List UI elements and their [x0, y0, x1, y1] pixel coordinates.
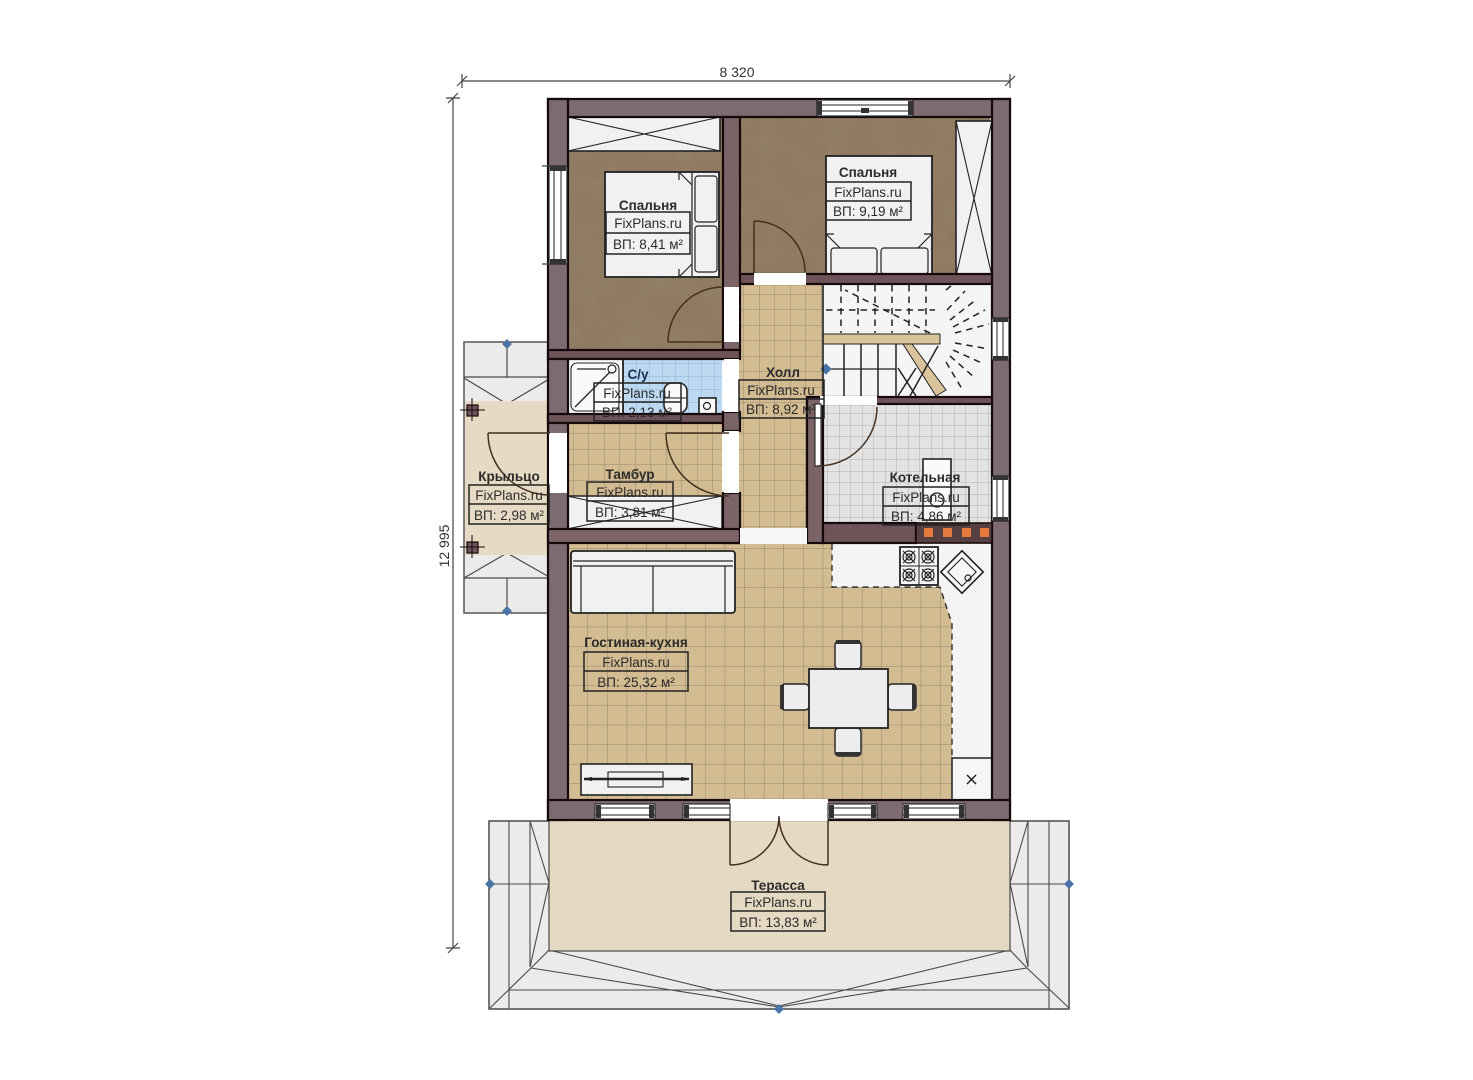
svg-text:12 995: 12 995 — [436, 524, 452, 567]
svg-text:Тамбур: Тамбур — [606, 467, 655, 482]
svg-text:ВП: 2,98 м²: ВП: 2,98 м² — [474, 508, 545, 523]
svg-text:FixPlans.ru: FixPlans.ru — [475, 488, 543, 503]
svg-text:Гостиная-кухня: Гостиная-кухня — [584, 635, 687, 650]
svg-text:С/у: С/у — [627, 367, 649, 382]
svg-text:FixPlans.ru: FixPlans.ru — [603, 386, 671, 401]
svg-text:ВП: 3,81 м²: ВП: 3,81 м² — [595, 505, 666, 520]
svg-text:FixPlans.ru: FixPlans.ru — [744, 895, 812, 910]
svg-text:Котельная: Котельная — [890, 470, 961, 485]
svg-text:FixPlans.ru: FixPlans.ru — [596, 485, 664, 500]
svg-text:ВП: 8,92 м²: ВП: 8,92 м² — [746, 402, 817, 417]
svg-text:ВП: 13,83 м²: ВП: 13,83 м² — [739, 915, 817, 930]
svg-text:FixPlans.ru: FixPlans.ru — [892, 490, 960, 505]
svg-text:FixPlans.ru: FixPlans.ru — [834, 185, 902, 200]
svg-text:Холл: Холл — [766, 365, 800, 380]
svg-text:ВП: 8,41 м²: ВП: 8,41 м² — [613, 237, 684, 252]
svg-text:Терасса: Терасса — [751, 878, 805, 893]
svg-text:ВП: 2,13 м²: ВП: 2,13 м² — [602, 405, 673, 420]
svg-text:8 320: 8 320 — [719, 64, 754, 80]
svg-text:Спальня: Спальня — [619, 198, 677, 213]
svg-text:FixPlans.ru: FixPlans.ru — [602, 655, 670, 670]
svg-text:Спальня: Спальня — [839, 165, 897, 180]
svg-text:ВП: 9,19 м²: ВП: 9,19 м² — [833, 204, 904, 219]
svg-text:ВП: 4,86 м²: ВП: 4,86 м² — [891, 509, 962, 524]
svg-text:ВП: 25,32 м²: ВП: 25,32 м² — [597, 675, 675, 690]
svg-text:FixPlans.ru: FixPlans.ru — [747, 383, 815, 398]
svg-text:FixPlans.ru: FixPlans.ru — [614, 216, 682, 231]
svg-text:Крыльцо: Крыльцо — [478, 469, 539, 484]
